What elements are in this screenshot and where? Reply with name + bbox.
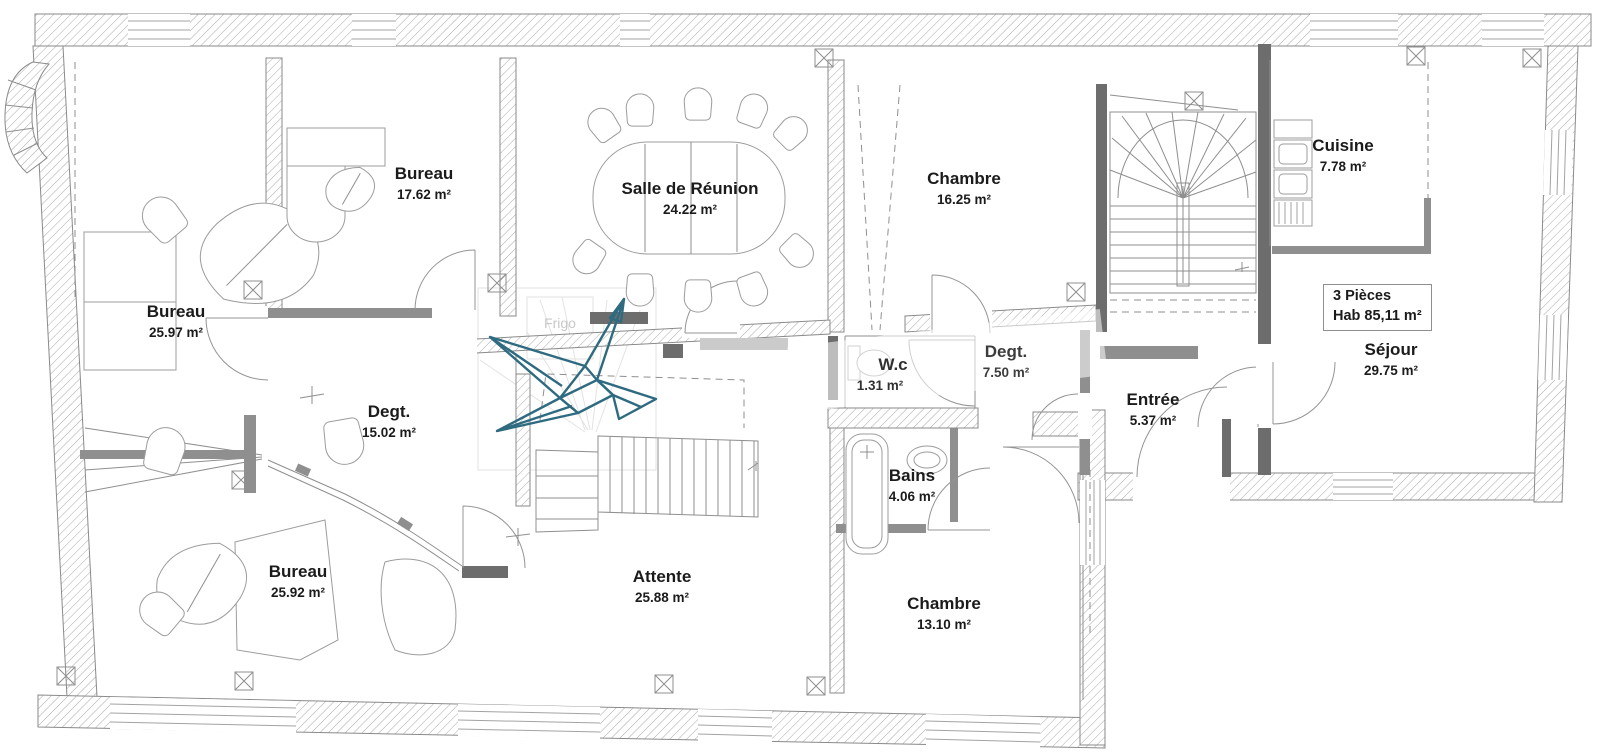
room-label-degt-left: Degt. 15.02 m²	[362, 403, 416, 440]
room-label-bureau-bottom: Bureau 25.92 m²	[269, 563, 328, 600]
room-area: 16.25 m²	[927, 193, 1001, 207]
room-name: Chambre	[907, 595, 981, 612]
room-area: 7.50 m²	[983, 366, 1030, 380]
room-label-chambre-top: Chambre 16.25 m²	[927, 170, 1001, 207]
room-label-degt-right: Degt. 7.50 m²	[983, 343, 1030, 380]
room-name: Cuisine	[1312, 137, 1373, 154]
room-area: 13.10 m²	[907, 618, 981, 632]
room-name: Entrée	[1127, 391, 1180, 408]
room-label-cuisine: Cuisine 7.78 m²	[1312, 137, 1373, 174]
room-name: Bureau	[395, 165, 454, 182]
room-area: 29.75 m²	[1364, 364, 1418, 378]
room-area: 7.78 m²	[1312, 160, 1373, 174]
room-name: Attente	[633, 568, 692, 585]
room-area: 1.31 m²	[852, 379, 907, 393]
room-label-bureau-top: Bureau 17.62 m²	[395, 165, 454, 202]
room-label-attente: Attente 25.88 m²	[633, 568, 692, 605]
frigo-label: Frigo	[544, 315, 576, 331]
room-name: Salle de Réunion	[622, 180, 759, 197]
room-label-chambre-bottom: Chambre 13.10 m²	[907, 595, 981, 632]
room-name: Séjour	[1364, 341, 1418, 358]
floor-plan-drawing	[0, 0, 1600, 756]
room-area: 5.37 m²	[1127, 414, 1180, 428]
surface-summary-box: 3 Pièces Hab 85,11 m²	[1323, 284, 1432, 331]
room-area: 15.02 m²	[362, 426, 416, 440]
room-label-bains: Bains 4.06 m²	[889, 467, 936, 504]
room-label-salle-de-reunion: Salle de Réunion 24.22 m²	[622, 180, 759, 217]
summary-line2: Hab 85,11 m²	[1333, 307, 1422, 327]
room-name: Bureau	[269, 563, 328, 580]
room-name: Degt.	[362, 403, 416, 420]
main-staircase	[1110, 112, 1256, 293]
room-label-entree: Entrée 5.37 m²	[1127, 391, 1180, 428]
room-area: 17.62 m²	[395, 188, 454, 202]
room-name: W.c	[878, 356, 907, 373]
floor-plan-page: Bureau 25.97 m² Bureau 17.62 m² Salle de…	[0, 0, 1600, 756]
room-area: 24.22 m²	[622, 203, 759, 217]
mid-staircase	[536, 436, 758, 532]
room-name: Bains	[889, 467, 936, 484]
room-area: 25.88 m²	[633, 591, 692, 605]
room-label-wc: W.c 1.31 m²	[878, 356, 907, 393]
room-name: Degt.	[983, 343, 1030, 360]
room-area: 25.92 m²	[269, 586, 328, 600]
room-name: Chambre	[927, 170, 1001, 187]
room-area: 25.97 m²	[147, 326, 206, 340]
room-label-sejour: Séjour 29.75 m²	[1364, 341, 1418, 378]
room-name: Bureau	[147, 303, 206, 320]
room-area: 4.06 m²	[889, 490, 936, 504]
summary-line1: 3 Pièces	[1333, 287, 1422, 307]
room-label-bureau-left: Bureau 25.97 m²	[147, 303, 206, 340]
